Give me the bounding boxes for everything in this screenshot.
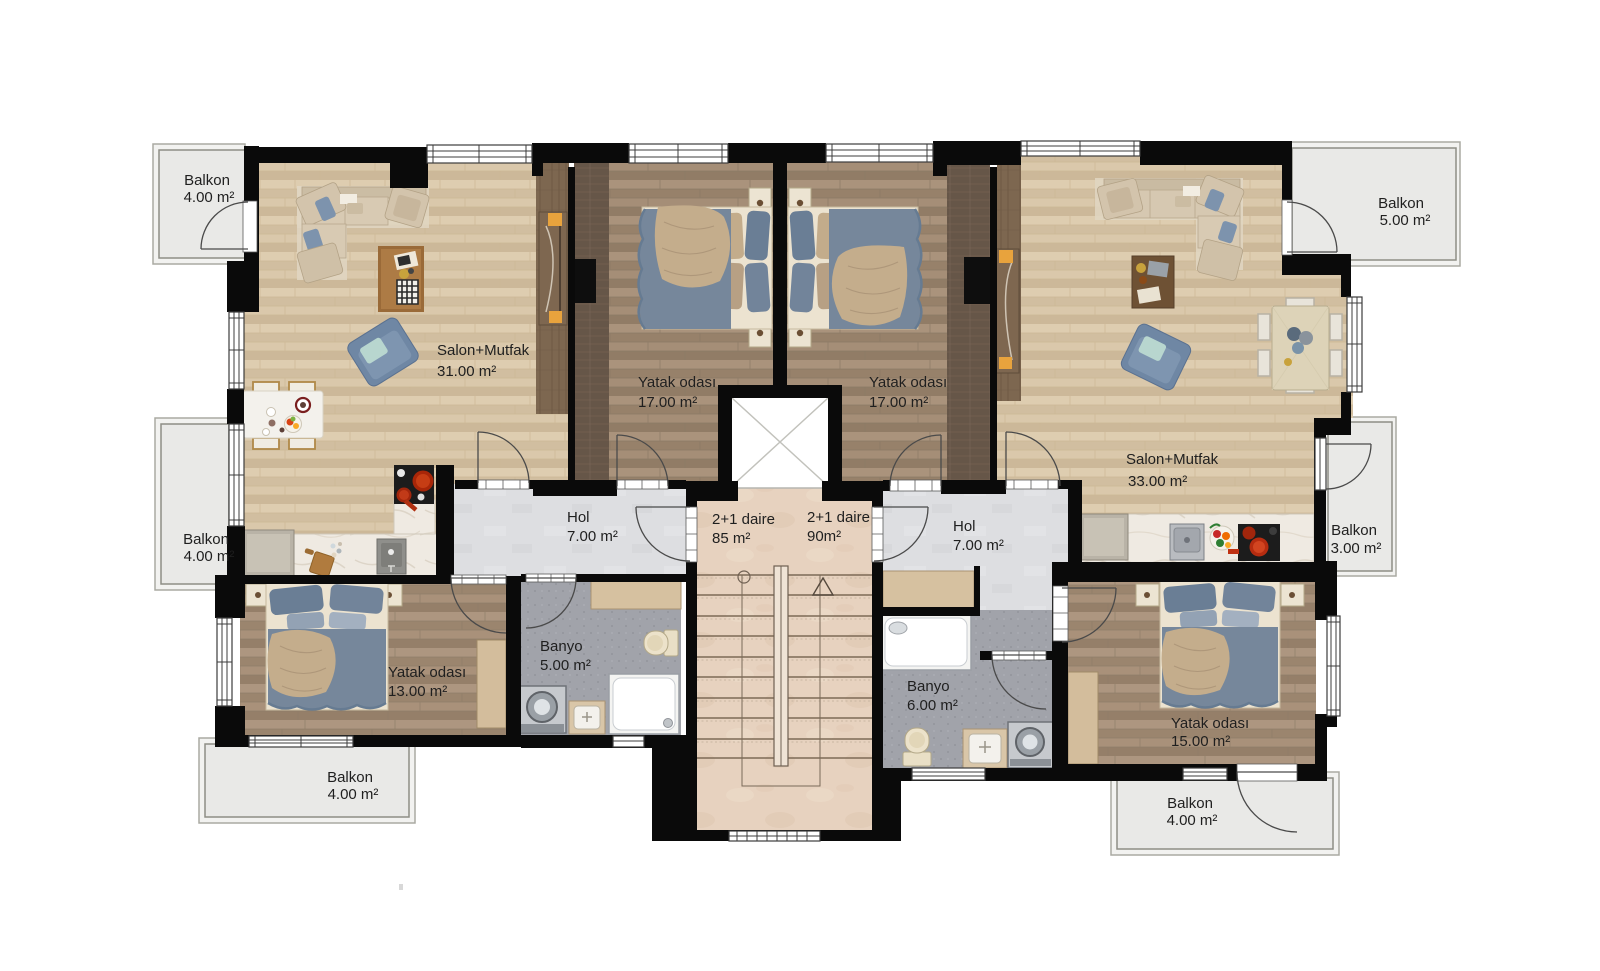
svg-text:Banyo: Banyo [540,638,583,655]
svg-text:Yatak odası: Yatak odası [869,374,947,391]
svg-text:Hol: Hol [953,518,976,535]
svg-text:Balkon: Balkon [1167,795,1213,812]
svg-text:Balkon: Balkon [327,769,373,786]
svg-text:17.00 m²: 17.00 m² [638,394,697,411]
svg-text:Balkon: Balkon [183,531,229,548]
svg-text:Balkon: Balkon [184,172,230,189]
svg-text:4.00 m²: 4.00 m² [328,786,379,803]
svg-text:7.00 m²: 7.00 m² [953,537,1004,554]
svg-text:5.00 m²: 5.00 m² [1380,212,1431,229]
svg-text:6.00 m²: 6.00 m² [907,697,958,714]
svg-text:Hol: Hol [567,509,590,526]
svg-text:90m²: 90m² [807,528,841,545]
svg-text:13.00 m²: 13.00 m² [388,683,447,700]
svg-text:Banyo: Banyo [907,678,950,695]
svg-text:Salon+Mutfak: Salon+Mutfak [437,342,530,359]
svg-text:2+1 daire: 2+1 daire [712,511,775,528]
svg-text:31.00 m²: 31.00 m² [437,363,496,380]
svg-text:4.00 m²: 4.00 m² [184,548,235,565]
svg-text:33.00 m²: 33.00 m² [1128,473,1187,490]
svg-text:Yatak odası: Yatak odası [388,664,466,681]
svg-text:Balkon: Balkon [1378,195,1424,212]
svg-text:7.00 m²: 7.00 m² [567,528,618,545]
svg-text:85 m²: 85 m² [712,530,750,547]
svg-text:4.00 m²: 4.00 m² [1167,812,1218,829]
svg-text:3.00 m²: 3.00 m² [1331,540,1382,557]
svg-text:17.00 m²: 17.00 m² [869,394,928,411]
svg-text:15.00 m²: 15.00 m² [1171,733,1230,750]
svg-text:4.00 m²: 4.00 m² [184,189,235,206]
svg-text:2+1 daire: 2+1 daire [807,509,870,526]
svg-text:5.00 m²: 5.00 m² [540,657,591,674]
svg-text:Balkon: Balkon [1331,522,1377,539]
svg-text:Salon+Mutfak: Salon+Mutfak [1126,451,1219,468]
svg-text:Yatak odası: Yatak odası [638,374,716,391]
svg-text:Yatak odası: Yatak odası [1171,715,1249,732]
